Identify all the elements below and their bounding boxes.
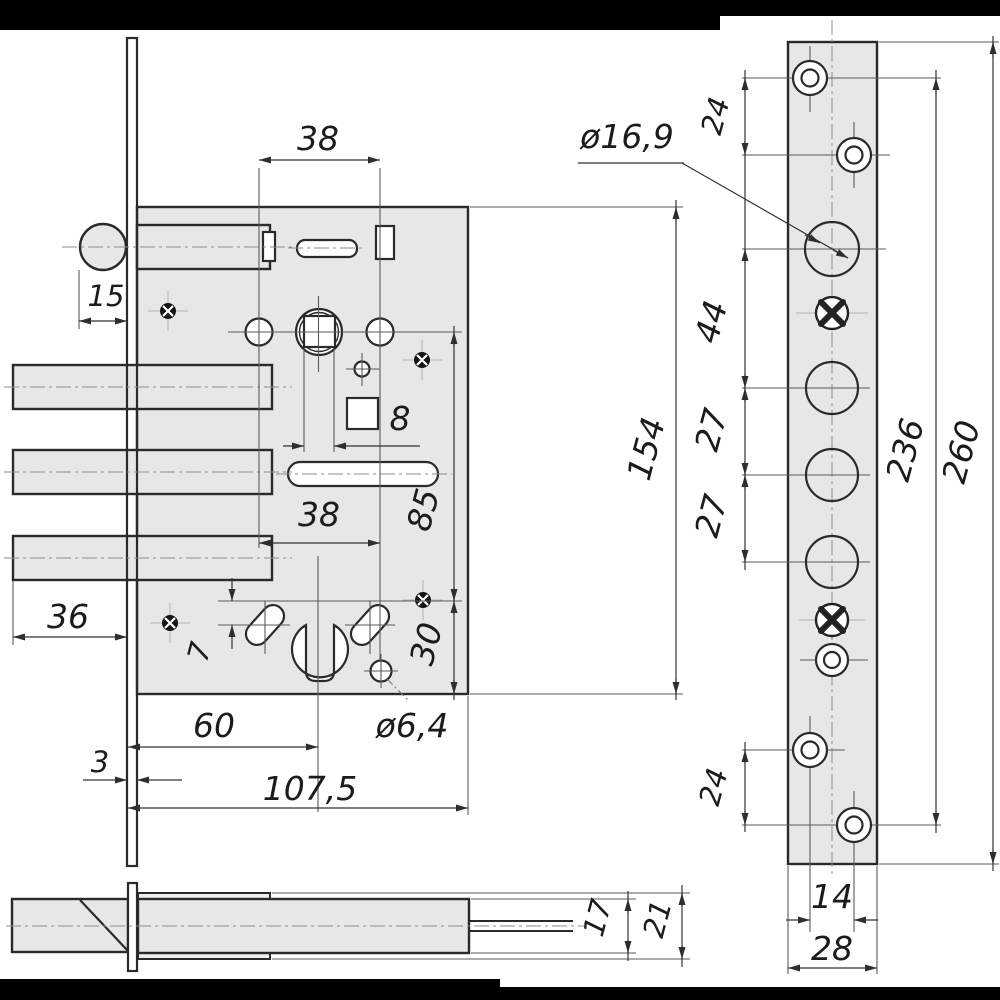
- dim-bolt-projection: 36: [47, 597, 89, 636]
- stop-pin-hole: [376, 226, 394, 259]
- dim-backset: 60: [193, 706, 235, 745]
- letterbox-bottom-thick: [0, 979, 500, 1000]
- dim-overall-thickness: 21: [636, 897, 678, 941]
- countersunk-screw-hole: [793, 61, 827, 95]
- bottom-view: 17 21: [6, 883, 690, 971]
- dim-case-thickness: 17: [576, 895, 619, 940]
- dim-case-height: 154: [619, 413, 673, 484]
- faceplate-plan-view: ø16,9 24 44 27 27 236 260 24 14 28: [578, 20, 999, 974]
- countersunk-screw-hole: [837, 808, 871, 842]
- cross-screw-icon: [816, 604, 848, 636]
- dim-top-screw-spacing: 24: [694, 94, 736, 138]
- dim-screw-spacing-lower: 38: [298, 495, 340, 534]
- dim-bolt-spacing-2: 27: [687, 490, 736, 541]
- countersunk-screw-hole: [837, 138, 871, 172]
- dim-latch-projection: 15: [88, 279, 125, 313]
- dim-screw-column-offset: 14: [811, 877, 853, 916]
- countersunk-screw-hole: [816, 644, 848, 676]
- cross-screw-icon: [816, 297, 848, 329]
- faceplate-bottom: [128, 883, 137, 971]
- dim-bolt-spacing-1: 27: [687, 404, 736, 455]
- dim-case-depth: 107,5: [263, 769, 357, 808]
- dim-faceplate-length: 260: [934, 416, 988, 487]
- dim-bottom-screw-spacing: 24: [692, 765, 734, 809]
- dim-follower-square: 8: [390, 399, 411, 438]
- dim-fixing-hole-dia: ø6,4: [375, 706, 449, 745]
- countersunk-screw-hole: [793, 733, 827, 767]
- drawing-canvas: 38 15 8 38 85 7 36 30 60 ø6,4 3 107,5 15…: [0, 0, 1000, 1000]
- dim-latch-to-first-bolt: 44: [687, 296, 736, 347]
- dim-latch-hole-dia: ø16,9: [579, 117, 674, 156]
- front-view: 38 15 8 38 85 7 36 30 60 ø6,4 3 107,5 15…: [4, 38, 683, 866]
- dim-screw-hole-span: 236: [878, 414, 932, 485]
- spare-square-hole: [347, 398, 378, 429]
- letterbox-top-thick: [0, 0, 720, 30]
- dim-handle-screw-spacing-top: 38: [297, 119, 339, 158]
- dim-faceplate-width: 28: [811, 929, 853, 968]
- dim-faceplate-thickness: 3: [91, 745, 109, 779]
- lock-technical-drawing: 38 15 8 38 85 7 36 30 60 ø6,4 3 107,5 15…: [0, 0, 1000, 1000]
